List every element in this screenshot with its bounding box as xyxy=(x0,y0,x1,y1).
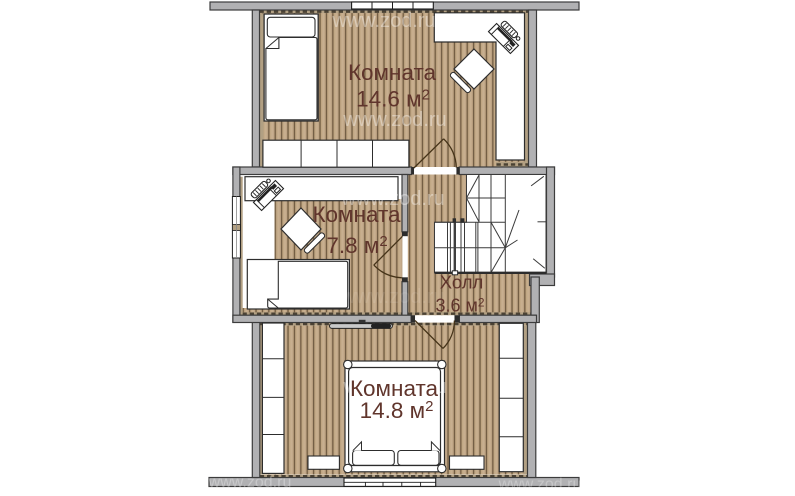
svg-text:www.zod.ru: www.zod.ru xyxy=(208,474,292,491)
svg-text:3.6 м2: 3.6 м2 xyxy=(435,296,484,316)
svg-text:www.zod.ru: www.zod.ru xyxy=(340,286,444,308)
svg-text:Комната: Комната xyxy=(312,202,401,227)
svg-text:Холл: Холл xyxy=(440,272,484,293)
svg-text:14.8 м2: 14.8 м2 xyxy=(360,398,434,423)
svg-text:14.6 м2: 14.6 м2 xyxy=(356,87,430,112)
svg-text:www.zod.ru: www.zod.ru xyxy=(331,10,435,32)
svg-text:www.zod.ru: www.zod.ru xyxy=(342,109,446,131)
svg-text:7.8 м2: 7.8 м2 xyxy=(326,233,387,258)
svg-text:Комната: Комната xyxy=(348,60,437,85)
svg-text:www.zod.ru: www.zod.ru xyxy=(498,476,582,493)
